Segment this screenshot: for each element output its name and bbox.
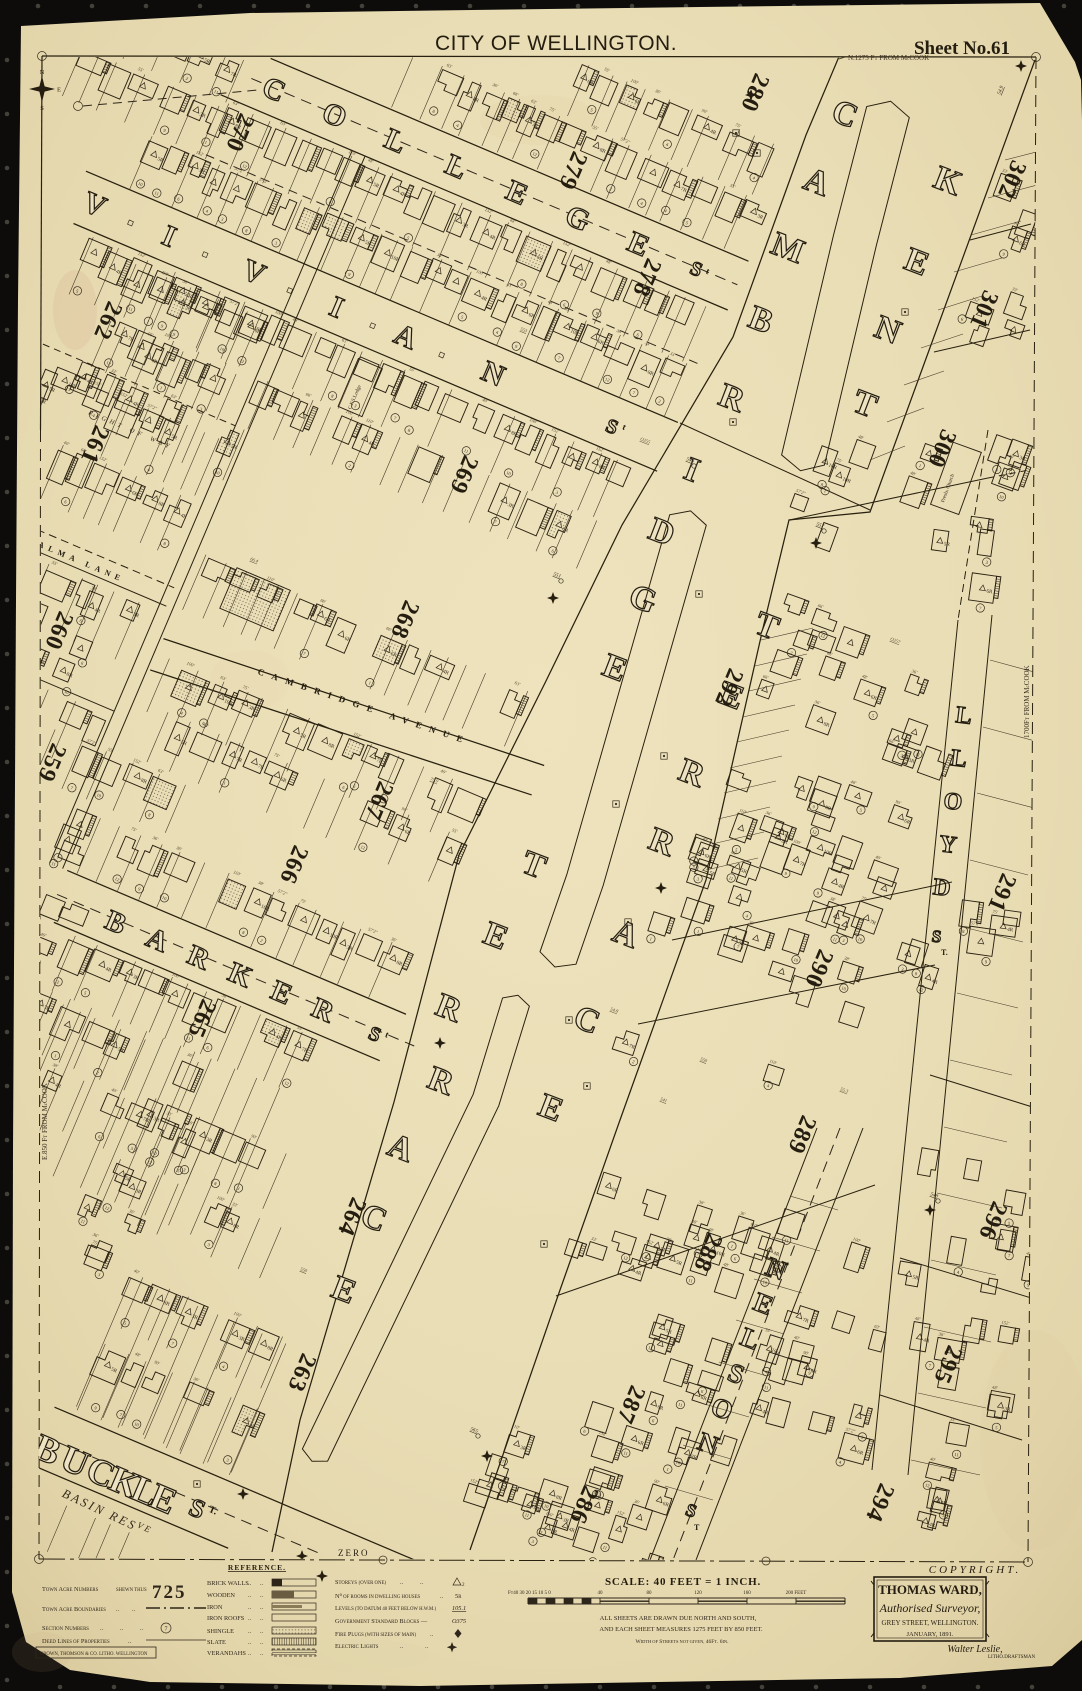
svg-text:80: 80 (647, 1591, 653, 1596)
svg-text:D: D (932, 874, 952, 902)
svg-text:..: .. (400, 1643, 404, 1650)
svg-text:FT40 30 20 15 10 5 0: FT40 30 20 15 10 5 0 (508, 1590, 551, 1596)
svg-text:T.: T. (941, 948, 948, 957)
svg-text:STOREYS (OVER ONE): STOREYS (OVER ONE) (335, 1579, 386, 1586)
svg-text:..: .. (248, 1592, 252, 1599)
svg-text:..: .. (260, 1639, 264, 1646)
svg-text:FIRE PLUGS (WITH SIZES OF MAIN: FIRE PLUGS (WITH SIZES OF MAIN) (335, 1631, 416, 1638)
svg-text:Authorised Surveyor,: Authorised Surveyor, (879, 1601, 981, 1615)
svg-text:120: 120 (694, 1591, 702, 1596)
svg-text:IRON: IRON (207, 1604, 223, 1611)
svg-text:..: .. (400, 1579, 404, 1586)
svg-text:..: .. (260, 1592, 264, 1599)
svg-text:DEED LINES OF PROPERTIES: DEED LINES OF PROPERTIES (42, 1638, 110, 1645)
svg-text:..: .. (425, 1643, 429, 1650)
svg-text:IRON ROOFS: IRON ROOFS (207, 1615, 245, 1622)
svg-text:N: N (40, 69, 45, 76)
svg-text:Y: Y (938, 831, 958, 859)
svg-text:..: .. (140, 1625, 144, 1632)
svg-text:O: O (942, 788, 964, 816)
svg-text:ZERO: ZERO (338, 1548, 370, 1558)
svg-text:GREY STREET, WELLINGTON.: GREY STREET, WELLINGTON. (882, 1619, 979, 1627)
svg-text:SECTION NUMBERS: SECTION NUMBERS (42, 1625, 89, 1632)
svg-text:7: 7 (165, 1627, 168, 1633)
svg-text:Walter Leslie,: Walter Leslie, (947, 1644, 1002, 1655)
svg-text:BROWN, THOMSON & CO. LITHO. WE: BROWN, THOMSON & CO. LITHO. WELLINGTON (40, 1652, 148, 1657)
svg-text:TOWN ACRE NUMBERS: TOWN ACRE NUMBERS (42, 1586, 99, 1593)
svg-text:VERANDAHS: VERANDAHS (207, 1650, 246, 1657)
svg-text:40: 40 (598, 1591, 604, 1596)
svg-text:SHEWN THUS: SHEWN THUS (116, 1588, 147, 1593)
svg-text:..: .. (132, 1606, 136, 1613)
svg-text:..: .. (100, 1625, 104, 1632)
svg-text:THOMAS WARD,: THOMAS WARD, (878, 1582, 982, 1597)
svg-text:..: .. (440, 1593, 444, 1600)
svg-text:WOODEN: WOODEN (207, 1592, 235, 1599)
svg-text:160: 160 (743, 1591, 751, 1596)
svg-text:T: T (694, 1523, 700, 1532)
svg-text:SCALE: 40 FEET = 1 INCH.: SCALE: 40 FEET = 1 INCH. (605, 1576, 761, 1588)
svg-text:JANUARY, 1891.: JANUARY, 1891. (906, 1631, 953, 1638)
svg-text:105.1: 105.1 (452, 1605, 466, 1612)
svg-text:..: .. (248, 1650, 252, 1657)
svg-text:..: .. (120, 1625, 124, 1632)
svg-text:S: S (40, 105, 44, 112)
svg-text:..: .. (128, 1638, 132, 1645)
svg-text:GOVERNMENT STANDARD BLOCKS —: GOVERNMENT STANDARD BLOCKS — (335, 1618, 428, 1625)
svg-text:..: .. (420, 1579, 424, 1586)
svg-text:E: E (57, 87, 61, 94)
svg-text:..: .. (116, 1606, 120, 1613)
svg-text:..: .. (248, 1639, 252, 1646)
svg-text:L: L (954, 702, 973, 730)
svg-text:5R: 5R (455, 1593, 462, 1600)
svg-text:..: .. (260, 1580, 264, 1587)
svg-text:..: .. (260, 1615, 264, 1622)
svg-text:No OF ROOMS IN DWELLING HOUSES: No OF ROOMS IN DWELLING HOUSES (335, 1593, 421, 1600)
svg-text:725: 725 (152, 1582, 187, 1603)
svg-text:LITHO.DRAFTSMAN: LITHO.DRAFTSMAN (988, 1655, 1035, 1660)
svg-text:O375: O375 (452, 1618, 466, 1625)
svg-text:COPYRIGHT.: COPYRIGHT. (929, 1564, 1021, 1576)
svg-text:CITY OF WELLINGTON.: CITY OF WELLINGTON. (435, 32, 677, 55)
svg-text:..: .. (260, 1604, 264, 1611)
svg-text:..: .. (248, 1604, 252, 1611)
svg-text:SLATE: SLATE (207, 1639, 226, 1646)
svg-text:..: .. (260, 1650, 264, 1657)
svg-text:..: .. (248, 1615, 252, 1622)
svg-text:L: L (949, 745, 968, 773)
svg-text:TOWN ACRE BOUNDARIES: TOWN ACRE BOUNDARIES (42, 1606, 106, 1613)
svg-text:REFERENCE.: REFERENCE. (228, 1563, 286, 1572)
svg-text:..: .. (248, 1580, 252, 1587)
svg-text:..: .. (248, 1628, 252, 1635)
svg-text:ELECTRIC LIGHTS: ELECTRIC LIGHTS (335, 1643, 379, 1650)
svg-text:1700FT FROM McCOOK: 1700FT FROM McCOOK (1023, 665, 1031, 738)
svg-text:BRICK WALLS: BRICK WALLS (207, 1580, 249, 1587)
svg-text:LEVELS (TO DATUM 40 FEET BELOW: LEVELS (TO DATUM 40 FEET BELOW H.W.M.) (335, 1605, 436, 1612)
svg-text:..: .. (260, 1628, 264, 1635)
svg-text:ALL SHEETS ARE DRAWN DUE NORTH: ALL SHEETS ARE DRAWN DUE NORTH AND SOUTH… (600, 1615, 757, 1622)
svg-text:E.850 FT FROM McCOOK: E.850 FT FROM McCOOK (41, 1083, 49, 1160)
svg-text:..: .. (430, 1631, 434, 1638)
svg-text:N.1275 FT FROM McCOOK: N.1275 FT FROM McCOOK (848, 54, 929, 62)
svg-text:SHINGLE: SHINGLE (207, 1628, 234, 1635)
svg-text:AND EACH SHEET MEASURES 1275 F: AND EACH SHEET MEASURES 1275 FEET BY 850… (599, 1626, 763, 1633)
svg-text:200 FEET: 200 FEET (786, 1591, 807, 1596)
